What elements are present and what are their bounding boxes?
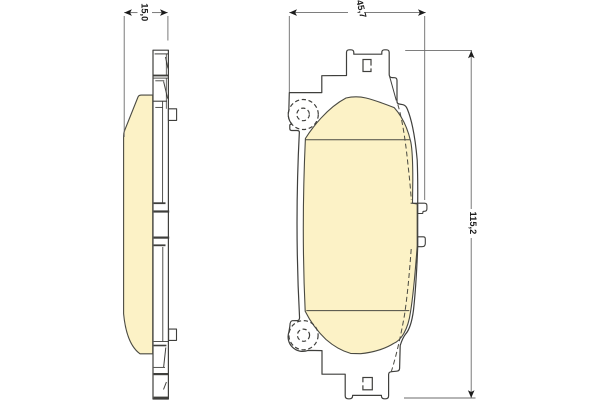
svg-text:115,2: 115,2 (468, 212, 478, 235)
svg-text:15,0: 15,0 (140, 3, 150, 21)
